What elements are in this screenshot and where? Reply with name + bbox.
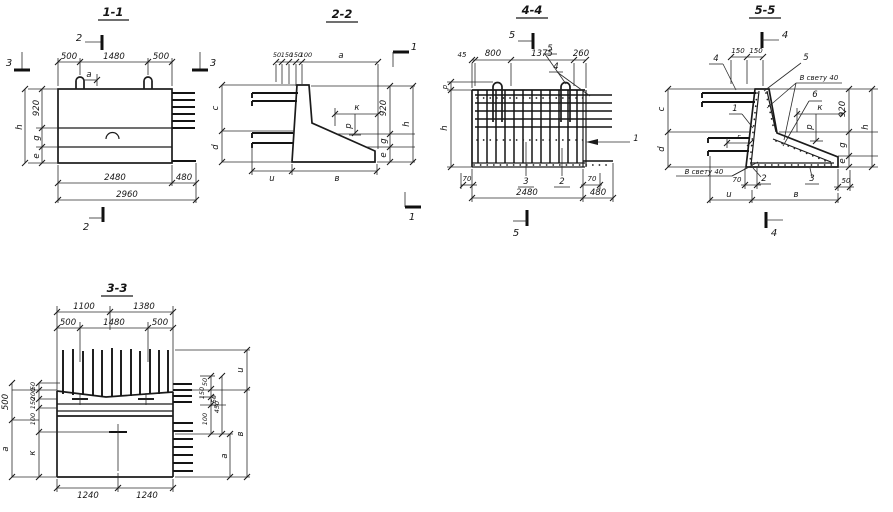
- dim-label: в: [793, 190, 798, 200]
- dim-label: 500: [60, 318, 76, 328]
- dim-label: p: [805, 124, 815, 130]
- dim-label: 50: [842, 177, 851, 185]
- dim-label: h: [15, 124, 25, 129]
- item-label: 2: [559, 177, 564, 187]
- dim-label: 1240: [136, 491, 158, 501]
- dim-label: 1380: [133, 302, 155, 312]
- dim-label: 100: [300, 51, 312, 59]
- dim-label: 500: [152, 318, 168, 328]
- dim-label: d: [657, 146, 667, 152]
- dim-label: к: [817, 103, 823, 113]
- dim-label: 2960: [116, 190, 138, 200]
- dim-label: p: [441, 84, 449, 90]
- dim-label: 1240: [77, 491, 99, 501]
- dim-label: g: [379, 138, 389, 144]
- cut-marker-label: 5: [509, 30, 515, 41]
- dim-label: 150: [731, 47, 745, 55]
- dim-label: h: [440, 125, 450, 130]
- cut-marker-label: 4: [771, 228, 777, 239]
- dim-label: e: [838, 158, 848, 163]
- callout-label: 1: [732, 104, 737, 114]
- dim-label: 1480: [103, 52, 125, 62]
- dim-label: 2480: [104, 173, 126, 183]
- dim-label: 100: [201, 413, 209, 425]
- item-label: 2: [761, 174, 766, 184]
- dim-label: e: [379, 152, 389, 157]
- section-title: 4-4: [521, 3, 543, 17]
- dim-label: 1100: [73, 302, 95, 312]
- dim-label: 50: [201, 378, 209, 386]
- drawing-sheet: 1-1 2 3 3 500 1480 500 a: [0, 0, 893, 512]
- callout-label: 4: [713, 54, 718, 64]
- clear-distance-label: В свету 40: [800, 74, 839, 82]
- cut-marker-label: 2: [76, 33, 82, 44]
- dim-label: 70: [733, 176, 742, 184]
- dim-label: h: [861, 124, 871, 129]
- dim-label: g: [32, 135, 42, 141]
- dim-label: 450: [213, 401, 221, 413]
- callout-label: 5: [547, 44, 552, 54]
- dim-label: 500: [153, 52, 169, 62]
- section-title: 3-3: [107, 281, 128, 295]
- section-title: 1-1: [103, 5, 124, 19]
- dim-label: u: [236, 367, 246, 372]
- dim-label: г: [737, 133, 741, 141]
- dim-label: к: [28, 450, 38, 456]
- dim-label: 800: [485, 49, 501, 59]
- callout-label: 4: [553, 62, 558, 72]
- cut-marker-label: 3: [6, 58, 12, 69]
- drawing-canvas: 1-1 2 3 3 500 1480 500 a: [0, 0, 893, 512]
- dim-label: c: [657, 106, 667, 111]
- dim-label: 920: [379, 100, 389, 116]
- dim-label: a: [1, 446, 11, 451]
- dim-label: 500: [61, 52, 77, 62]
- dim-label: 500: [1, 394, 11, 410]
- dim-label: 260: [573, 49, 589, 59]
- dim-label: в: [236, 431, 246, 436]
- cut-marker-label: 2: [83, 222, 89, 233]
- dim-label: a: [220, 453, 230, 458]
- dim-label: 150: [749, 47, 763, 55]
- dim-label: к: [354, 103, 360, 113]
- dim-label: 100: [29, 413, 37, 425]
- dim-label: 150: [29, 397, 37, 409]
- dim-label: 920: [838, 101, 848, 117]
- cut-marker-label: 1: [409, 212, 415, 223]
- dim-label: g: [838, 142, 848, 148]
- dim-label: h: [402, 121, 412, 126]
- dim-label: p: [344, 123, 354, 129]
- clear-distance-label: В свету 40: [685, 168, 724, 176]
- cut-marker-label: 1: [411, 42, 417, 53]
- dim-label: 480: [590, 188, 606, 198]
- dim-label: a: [86, 70, 91, 80]
- dim-label: a: [338, 51, 343, 61]
- dim-label: 1480: [103, 318, 125, 328]
- page-background: [0, 0, 893, 512]
- dim-label: u: [726, 190, 731, 200]
- dim-label: 70: [463, 175, 472, 183]
- dim-label: 480: [176, 173, 192, 183]
- section-title: 2-2: [332, 7, 353, 21]
- dim-label: 45: [458, 51, 467, 59]
- dim-label: e: [32, 153, 42, 158]
- dim-label: 920: [32, 100, 42, 116]
- callout-label: 6: [812, 90, 818, 100]
- dim-label: 70: [588, 175, 597, 183]
- dim-label: 2480: [516, 188, 538, 198]
- dim-label: u: [269, 174, 274, 184]
- item-label: 3: [523, 177, 528, 187]
- cut-marker-label: 4: [782, 30, 788, 41]
- dim-label: в: [334, 174, 339, 184]
- cut-marker-label: 5: [513, 228, 519, 239]
- dim-label: d: [211, 144, 221, 150]
- dim-label: c: [211, 105, 221, 110]
- callout-label: 1: [633, 134, 638, 144]
- callout-label: 5: [803, 53, 808, 63]
- section-title: 5-5: [755, 3, 776, 17]
- dim-label: 150: [198, 387, 206, 399]
- cut-marker-label: 3: [210, 58, 216, 69]
